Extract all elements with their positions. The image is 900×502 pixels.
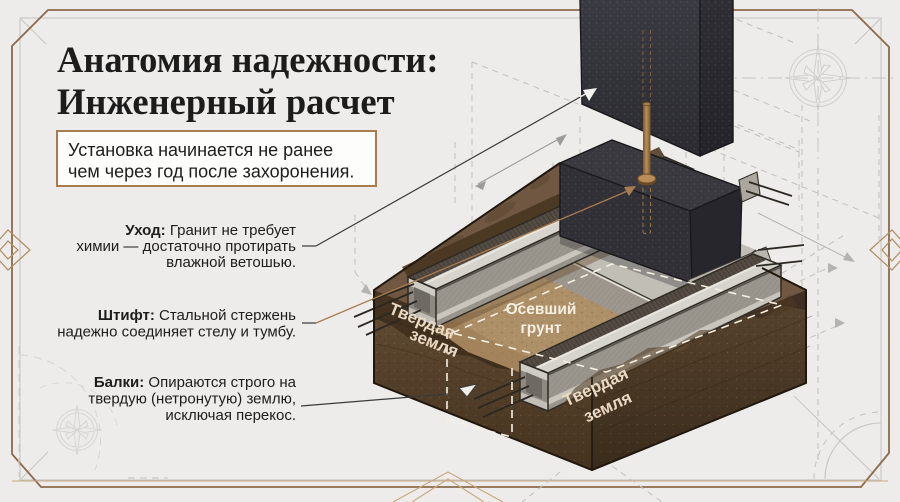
svg-text:твердую (нетронутую) землю,: твердую (нетронутую) землю, bbox=[88, 391, 296, 408]
svg-text:Штифт: Стальной стержень: Штифт: Стальной стержень bbox=[98, 307, 296, 324]
svg-text:исключая перекос.: исключая перекос. bbox=[165, 407, 296, 424]
svg-text:Уход: Гранит не требует: Уход: Гранит не требует bbox=[125, 222, 296, 239]
svg-text:влажной ветошью.: влажной ветошью. bbox=[166, 254, 296, 271]
svg-text:грунт: грунт bbox=[520, 320, 562, 337]
svg-text:надежно соединяет стелу и тумб: надежно соединяет стелу и тумбу. bbox=[57, 324, 296, 341]
svg-text:чем через год после захоронени: чем через год после захоронения. bbox=[68, 162, 354, 182]
svg-text:Балки: Опираются строго на: Балки: Опираются строго на bbox=[94, 374, 297, 391]
svg-text:Инженерный расчет: Инженерный расчет bbox=[57, 81, 395, 122]
svg-text:Осевший: Осевший bbox=[506, 301, 577, 318]
svg-text:Установка начинается не ранее: Установка начинается не ранее bbox=[68, 140, 333, 160]
svg-text:Анатомия надежности:: Анатомия надежности: bbox=[57, 39, 438, 80]
svg-text:химии — достаточно протирать: химии — достаточно протирать bbox=[76, 238, 296, 255]
